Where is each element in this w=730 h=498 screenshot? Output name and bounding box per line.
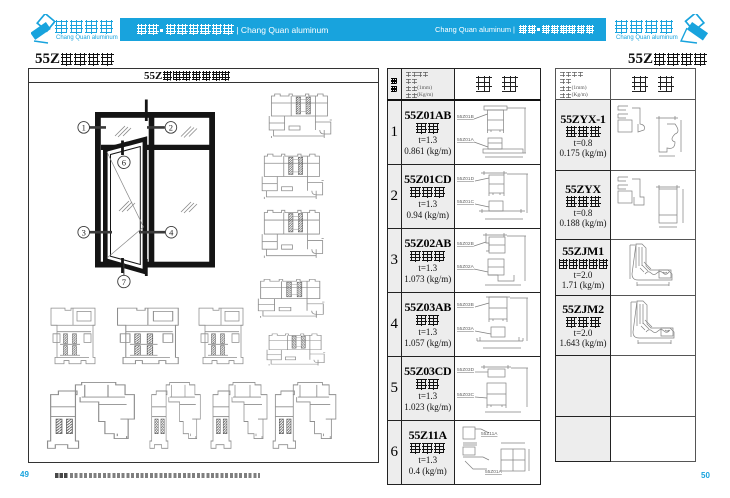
svg-text:55Z02A: 55Z02A bbox=[457, 264, 475, 270]
svg-text:55Z02B: 55Z02B bbox=[457, 241, 474, 247]
svg-text:7: 7 bbox=[122, 277, 126, 287]
svg-text:55Z03C: 55Z03C bbox=[457, 392, 475, 398]
svg-text:55Z01C: 55Z01C bbox=[457, 199, 475, 205]
svg-text:2: 2 bbox=[169, 123, 173, 133]
svg-text:1: 1 bbox=[82, 123, 86, 133]
svg-text:4: 4 bbox=[169, 227, 174, 237]
svg-text:55Z01A: 55Z01A bbox=[457, 137, 475, 143]
svg-text:55Z03A: 55Z03A bbox=[457, 326, 475, 332]
svg-text:55Z03D: 55Z03D bbox=[457, 367, 475, 373]
svg-text:55Z01A: 55Z01A bbox=[485, 469, 503, 475]
svg-text:55Z03B: 55Z03B bbox=[457, 302, 474, 308]
svg-text:55Z11A: 55Z11A bbox=[481, 431, 498, 437]
svg-text:55Z01B: 55Z01B bbox=[457, 114, 474, 120]
svg-text:55Z01D: 55Z01D bbox=[457, 176, 475, 182]
svg-text:6: 6 bbox=[122, 158, 126, 168]
svg-text:3: 3 bbox=[82, 227, 86, 237]
